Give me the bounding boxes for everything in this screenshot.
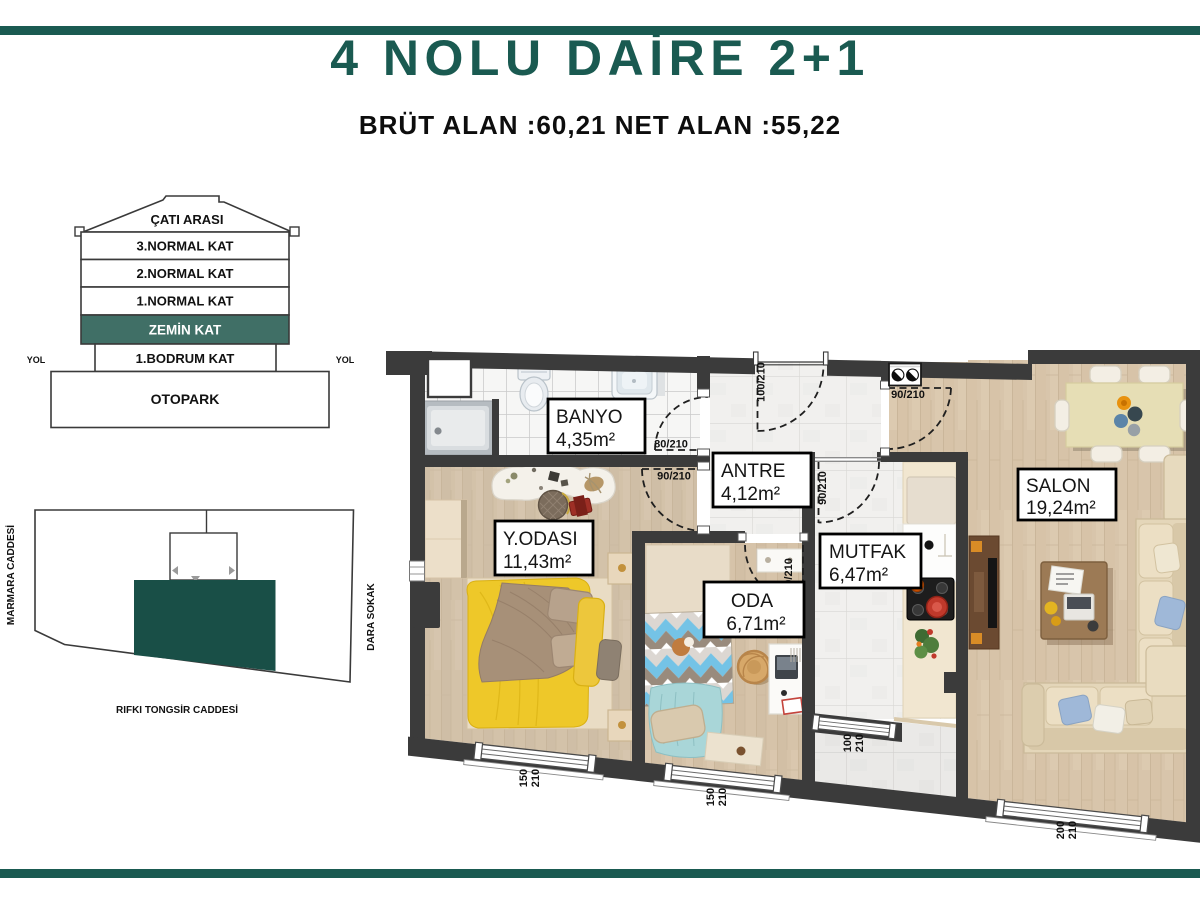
- svg-text:90/210: 90/210: [657, 471, 691, 483]
- svg-text:BANYO: BANYO: [556, 407, 623, 428]
- svg-text:ODA: ODA: [731, 590, 773, 612]
- svg-text:90/210: 90/210: [891, 389, 925, 401]
- svg-text:DARA SOKAK: DARA SOKAK: [366, 583, 377, 651]
- svg-text:210: 210: [717, 788, 729, 806]
- svg-text:100/210: 100/210: [756, 362, 768, 402]
- svg-text:ÇATI ARASI: ÇATI ARASI: [151, 212, 224, 227]
- svg-text:1.BODRUM KAT: 1.BODRUM KAT: [136, 351, 235, 366]
- svg-text:210: 210: [1067, 821, 1079, 839]
- svg-text:YOL: YOL: [336, 355, 355, 365]
- svg-text:SALON: SALON: [1026, 476, 1090, 497]
- svg-text:19,24m²: 19,24m²: [1026, 498, 1096, 519]
- svg-text:3.NORMAL KAT: 3.NORMAL KAT: [136, 239, 233, 254]
- svg-text:MARMARA CADDESİ: MARMARA CADDESİ: [4, 525, 17, 625]
- svg-text:200: 200: [1055, 821, 1067, 839]
- svg-text:YOL: YOL: [27, 355, 46, 365]
- svg-text:210: 210: [530, 769, 542, 787]
- svg-text:80/210: 80/210: [654, 439, 688, 451]
- svg-text:ZEMİN KAT: ZEMİN KAT: [149, 323, 222, 338]
- svg-text:RIFKI TONGSİR CADDESİ: RIFKI TONGSİR CADDESİ: [116, 703, 238, 716]
- svg-text:6,47m²: 6,47m²: [829, 565, 888, 586]
- svg-text:ANTRE: ANTRE: [721, 461, 785, 482]
- svg-text:150: 150: [518, 769, 530, 787]
- svg-text:MUTFAK: MUTFAK: [829, 542, 906, 563]
- svg-text:11,43m²: 11,43m²: [503, 552, 571, 573]
- svg-text:4,12m²: 4,12m²: [721, 484, 780, 505]
- svg-text:4,35m²: 4,35m²: [556, 430, 615, 451]
- svg-text:OTOPARK: OTOPARK: [151, 391, 220, 407]
- svg-text:Y.ODASI: Y.ODASI: [503, 529, 578, 550]
- svg-text:210: 210: [854, 734, 866, 752]
- svg-text:150: 150: [705, 788, 717, 806]
- svg-text:1.NORMAL KAT: 1.NORMAL KAT: [136, 294, 233, 309]
- svg-text:100: 100: [842, 734, 854, 752]
- svg-text:2.NORMAL KAT: 2.NORMAL KAT: [136, 266, 233, 281]
- svg-text:90/210: 90/210: [817, 471, 829, 505]
- svg-text:6,71m²: 6,71m²: [726, 614, 785, 635]
